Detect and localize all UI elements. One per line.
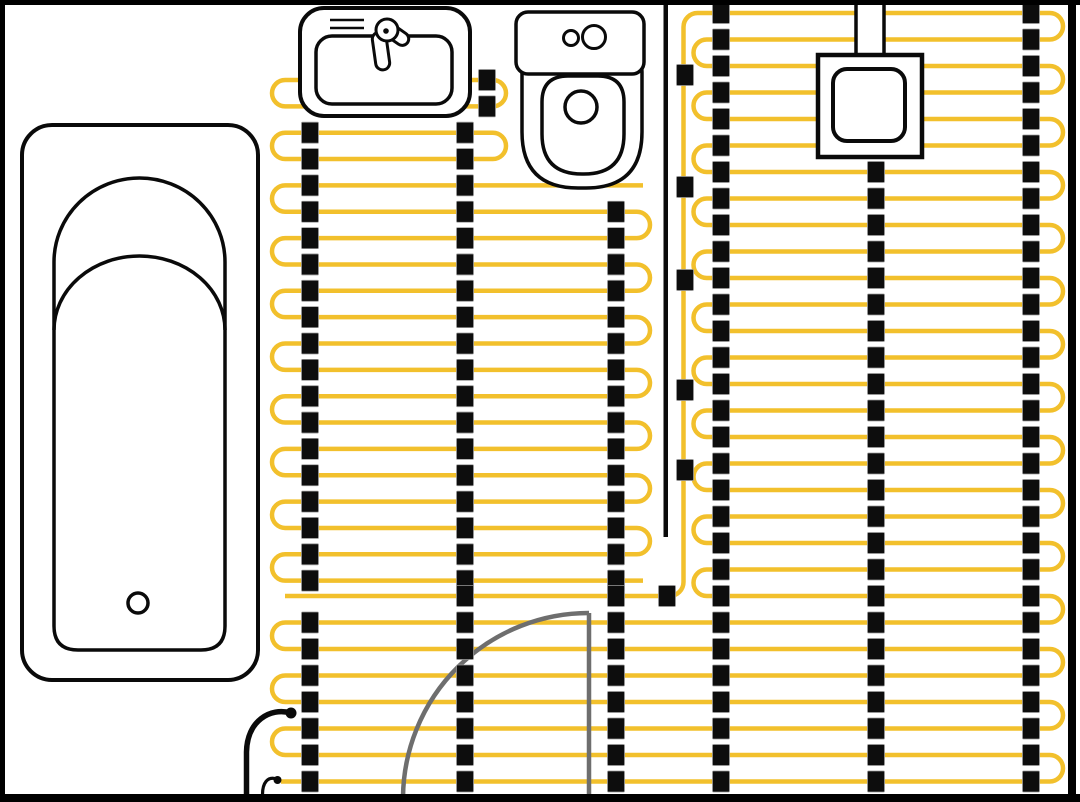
fixing-clip xyxy=(868,188,885,209)
fixing-clip xyxy=(457,254,474,275)
fixing-clip xyxy=(868,347,885,368)
fixing-clip xyxy=(713,559,730,580)
bathtub-drain xyxy=(128,593,148,613)
fixing-clip xyxy=(1023,427,1040,448)
fixing-clip xyxy=(713,3,730,24)
door-swing xyxy=(403,613,589,797)
fixing-clip xyxy=(457,639,474,660)
fixing-clip xyxy=(457,517,474,538)
fixing-clip xyxy=(713,215,730,236)
fixing-clip xyxy=(457,175,474,196)
fixing-clip xyxy=(1023,480,1040,501)
fixing-clip xyxy=(868,718,885,739)
fixing-clip xyxy=(1023,612,1040,633)
fixing-clip xyxy=(608,280,625,301)
fixing-clip xyxy=(713,453,730,474)
fixing-clip xyxy=(457,307,474,328)
fixing-clip xyxy=(868,533,885,554)
fixing-clip xyxy=(457,228,474,249)
fixing-clip xyxy=(457,122,474,143)
faucet-pivot-dot xyxy=(383,28,389,34)
fixing-clip xyxy=(868,427,885,448)
fixing-clip xyxy=(302,386,319,407)
fixing-clip xyxy=(1023,639,1040,660)
fixing-clip xyxy=(713,109,730,130)
fixing-clip xyxy=(302,333,319,354)
fixing-clip xyxy=(457,386,474,407)
fixing-clip xyxy=(302,254,319,275)
fixing-clip xyxy=(713,321,730,342)
fixing-clip xyxy=(677,177,694,198)
fixing-clip xyxy=(1023,321,1040,342)
fixing-clip xyxy=(868,692,885,713)
fixing-clip xyxy=(868,241,885,262)
fixing-clip xyxy=(608,692,625,713)
power-lead-end-dot xyxy=(286,708,297,719)
fixing-clip xyxy=(1023,374,1040,395)
fixing-clip xyxy=(457,692,474,713)
fixing-clip xyxy=(457,149,474,170)
fixing-clip xyxy=(1023,294,1040,315)
fixing-clip xyxy=(457,586,474,607)
zone-separator-line xyxy=(664,0,669,537)
fixing-clip xyxy=(1023,56,1040,77)
toilet-hole xyxy=(565,91,597,123)
fixing-clip xyxy=(868,586,885,607)
fixing-clip xyxy=(1023,188,1040,209)
fixing-clip xyxy=(677,65,694,86)
toilet-tank xyxy=(516,12,644,74)
fixing-clip xyxy=(713,135,730,156)
fixing-clip xyxy=(868,480,885,501)
fixing-clip xyxy=(608,745,625,766)
fixing-clip xyxy=(457,359,474,380)
fixing-clip xyxy=(713,718,730,739)
fixing-clip xyxy=(457,491,474,512)
fixing-clip xyxy=(713,374,730,395)
fixing-clip xyxy=(713,612,730,633)
fixing-clip xyxy=(608,771,625,792)
sink xyxy=(300,8,470,116)
fixing-clip xyxy=(868,294,885,315)
fixing-clip xyxy=(302,692,319,713)
fixing-clip xyxy=(1023,3,1040,24)
fixing-clip xyxy=(713,162,730,183)
fixing-clip xyxy=(457,612,474,633)
wall-right xyxy=(1068,0,1076,802)
fixing-clip xyxy=(302,491,319,512)
fixing-clip xyxy=(713,29,730,50)
fixing-clip xyxy=(868,612,885,633)
fixing-clip xyxy=(302,175,319,196)
fixing-clip xyxy=(608,307,625,328)
fixing-clip xyxy=(608,438,625,459)
toilet xyxy=(516,12,644,188)
fixing-clip xyxy=(608,586,625,607)
fixing-clip xyxy=(713,56,730,77)
bathtub-basin xyxy=(54,178,225,650)
fixing-clip xyxy=(608,665,625,686)
fixing-clip xyxy=(868,321,885,342)
fixing-clip xyxy=(302,465,319,486)
thermostat-inner-square xyxy=(833,69,905,141)
fixing-clip xyxy=(713,506,730,527)
separator xyxy=(664,0,669,537)
fixing-clip xyxy=(302,612,319,633)
fixing-clip xyxy=(1023,692,1040,713)
fixing-clip xyxy=(608,544,625,565)
fixing-clip xyxy=(1023,771,1040,792)
fixing-clip xyxy=(713,241,730,262)
fixing-clip xyxy=(1023,665,1040,686)
fixing-clip xyxy=(302,745,319,766)
fixing-clip xyxy=(713,480,730,501)
fixing-clip xyxy=(677,380,694,401)
fixing-clip xyxy=(713,665,730,686)
fixing-clip xyxy=(302,201,319,222)
fixing-clip xyxy=(302,517,319,538)
fixing-clip xyxy=(302,228,319,249)
fixing-clip xyxy=(302,771,319,792)
fixing-clip xyxy=(457,665,474,686)
fixing-clip xyxy=(608,517,625,538)
fixing-clip xyxy=(1023,109,1040,130)
fixing-clip xyxy=(302,570,319,591)
fixing-clip xyxy=(1023,586,1040,607)
fixing-clip xyxy=(608,718,625,739)
thermostat-conduit xyxy=(856,0,884,58)
fixing-clip xyxy=(302,359,319,380)
fixing-clip xyxy=(302,307,319,328)
fixing-clip xyxy=(868,639,885,660)
floor-plan-canvas xyxy=(0,0,1080,802)
fixing-clip xyxy=(457,544,474,565)
fixing-clip xyxy=(713,639,730,660)
fixing-clip xyxy=(302,149,319,170)
fixing-clip xyxy=(608,228,625,249)
fixing-clip xyxy=(868,162,885,183)
fixing-clip xyxy=(608,201,625,222)
fixing-clip xyxy=(1023,559,1040,580)
fixing-clip xyxy=(1023,506,1040,527)
fixing-clip xyxy=(1023,533,1040,554)
fixing-clip xyxy=(1023,745,1040,766)
fixing-clip xyxy=(868,559,885,580)
fixing-clip xyxy=(659,586,676,607)
fixing-clip xyxy=(457,412,474,433)
fixing-clip xyxy=(302,718,319,739)
fixing-clip xyxy=(479,96,496,117)
fixing-clip xyxy=(868,268,885,289)
door-arc xyxy=(403,613,589,797)
fixing-clip xyxy=(608,465,625,486)
fixing-clip xyxy=(457,465,474,486)
sensor-lead-end-dot xyxy=(274,776,282,784)
fixing-clip xyxy=(713,268,730,289)
fixing-clip xyxy=(1023,215,1040,236)
bathroom-heating-floor-plan xyxy=(0,0,1080,802)
fixing-clip xyxy=(1023,718,1040,739)
fixing-clip xyxy=(868,771,885,792)
fixing-clip xyxy=(608,359,625,380)
toilet-flush-button xyxy=(583,26,606,49)
fixing-clip xyxy=(1023,268,1040,289)
fixing-clip xyxy=(713,586,730,607)
fixing-clip xyxy=(302,122,319,143)
fixing-clip xyxy=(713,533,730,554)
fixing-clip xyxy=(457,771,474,792)
fixing-clip xyxy=(1023,135,1040,156)
fixing-clip xyxy=(868,400,885,421)
fixing-clip xyxy=(457,333,474,354)
fixing-clip xyxy=(302,639,319,660)
fixing-clip xyxy=(302,438,319,459)
fixing-clip xyxy=(457,718,474,739)
fixing-clip xyxy=(608,254,625,275)
fixing-clip xyxy=(713,771,730,792)
fixing-clip xyxy=(868,665,885,686)
fixing-clip xyxy=(608,612,625,633)
fixing-clip xyxy=(1023,162,1040,183)
fixing-clip xyxy=(713,347,730,368)
fixing-clip xyxy=(608,412,625,433)
wall-bottom xyxy=(0,794,1080,802)
fixing-clip xyxy=(302,280,319,301)
wall-left xyxy=(0,0,5,802)
fixing-clip xyxy=(302,665,319,686)
fixing-clip xyxy=(302,412,319,433)
fixing-clip xyxy=(868,374,885,395)
fixing-clip xyxy=(457,438,474,459)
fixing-clip xyxy=(713,294,730,315)
fixing-clip xyxy=(1023,29,1040,50)
fixing-clip xyxy=(713,745,730,766)
fixing-clip xyxy=(457,280,474,301)
fixing-clip xyxy=(1023,453,1040,474)
bathtub xyxy=(22,125,258,680)
fixing-clip xyxy=(868,506,885,527)
fixing-clip xyxy=(1023,347,1040,368)
fixing-clip xyxy=(713,692,730,713)
fixing-clip xyxy=(713,82,730,103)
fixing-clip xyxy=(677,270,694,291)
fixing-clip xyxy=(608,333,625,354)
fixing-clip xyxy=(713,427,730,448)
fixing-clip xyxy=(457,201,474,222)
fixing-clip xyxy=(608,386,625,407)
fixing-clip xyxy=(868,453,885,474)
fixing-clip xyxy=(457,745,474,766)
thermostat-box xyxy=(818,0,922,157)
fixing-clip xyxy=(713,400,730,421)
fixing-clip xyxy=(302,544,319,565)
fixing-clip xyxy=(868,215,885,236)
fixing-clip xyxy=(1023,82,1040,103)
fixing-clip xyxy=(1023,241,1040,262)
wall-top xyxy=(0,0,1080,5)
fixing-clip xyxy=(713,188,730,209)
toilet-flush-button xyxy=(564,31,579,46)
fixing-clip xyxy=(608,639,625,660)
fixing-clip xyxy=(677,460,694,481)
fixing-clip xyxy=(868,745,885,766)
fixing-clip xyxy=(1023,400,1040,421)
fixing-clip xyxy=(479,70,496,91)
fixing-clip xyxy=(608,491,625,512)
